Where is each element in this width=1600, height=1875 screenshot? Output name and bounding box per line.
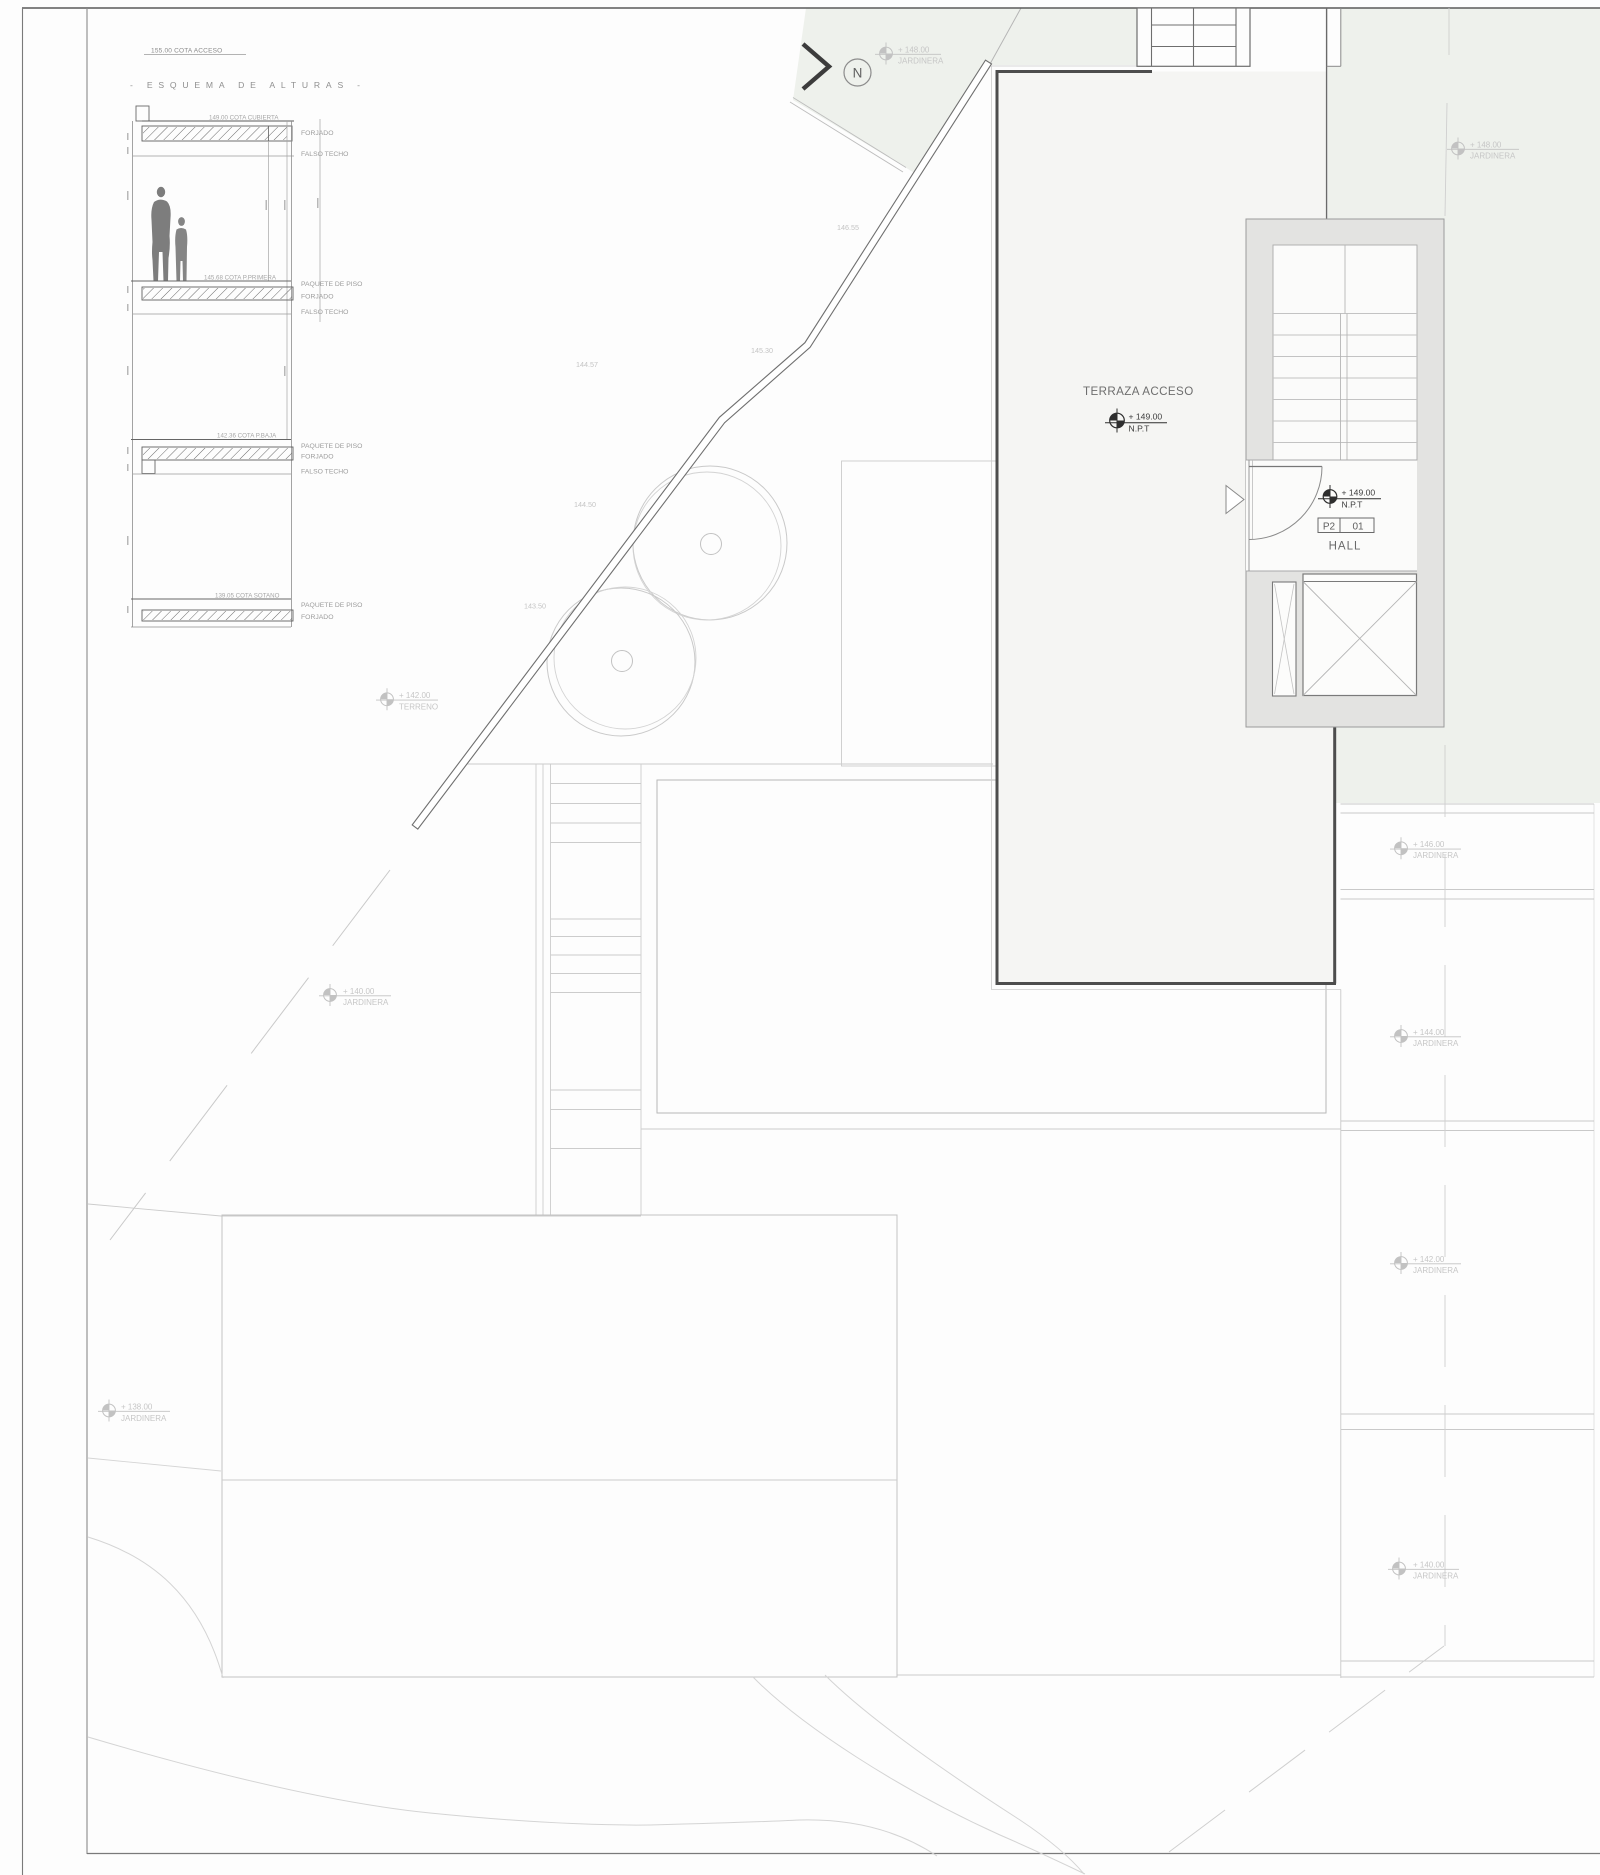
- svg-text:146.55: 146.55: [837, 223, 859, 232]
- svg-text:PAQUETE DE PISO: PAQUETE DE PISO: [301, 281, 362, 288]
- svg-text:+ 148.00: + 148.00: [1470, 140, 1502, 149]
- svg-text:TERRENO: TERRENO: [399, 703, 438, 712]
- svg-text:145.68 COTA P.PRIMERA: 145.68 COTA P.PRIMERA: [204, 275, 277, 282]
- svg-text:144.50: 144.50: [574, 500, 596, 509]
- svg-text:+ 149.00: + 149.00: [1342, 487, 1376, 497]
- svg-text:+ 144.00: + 144.00: [1413, 1028, 1445, 1037]
- svg-text:FORJADO: FORJADO: [301, 294, 333, 301]
- svg-text:PAQUETE DE PISO: PAQUETE DE PISO: [301, 602, 362, 609]
- svg-text:FORJADO: FORJADO: [301, 454, 333, 461]
- svg-text:P2: P2: [1323, 522, 1336, 533]
- svg-text:+ 142.00: + 142.00: [399, 691, 431, 700]
- svg-text:N.P.T: N.P.T: [1129, 423, 1151, 433]
- svg-text:FALSO TECHO: FALSO TECHO: [301, 469, 348, 476]
- svg-text:+ 138.00: + 138.00: [121, 1402, 153, 1411]
- svg-text:JARDINERA: JARDINERA: [1413, 1571, 1459, 1580]
- svg-text:JARDINERA: JARDINERA: [1470, 151, 1516, 160]
- svg-text:142.36 COTA P.BAJA: 142.36 COTA P.BAJA: [217, 433, 277, 440]
- svg-text:144.57: 144.57: [576, 360, 598, 369]
- svg-text:139.05 COTA SOTANO: 139.05 COTA SOTANO: [215, 593, 280, 600]
- svg-text:JARDINERA: JARDINERA: [343, 998, 389, 1007]
- svg-text:+ 148.00: + 148.00: [898, 45, 930, 54]
- svg-text:FALSO TECHO: FALSO TECHO: [301, 151, 348, 158]
- svg-text:+ 149.00: + 149.00: [1129, 411, 1163, 421]
- svg-text:N.P.T: N.P.T: [1342, 499, 1364, 509]
- svg-text:155.00 COTA ACCESO: 155.00 COTA ACCESO: [151, 48, 222, 55]
- svg-text:FALSO TECHO: FALSO TECHO: [301, 309, 348, 316]
- svg-text:HALL: HALL: [1329, 541, 1362, 553]
- svg-text:FORJADO: FORJADO: [301, 130, 333, 137]
- svg-text:145.30: 145.30: [751, 346, 773, 355]
- svg-text:FORJADO: FORJADO: [301, 614, 333, 621]
- svg-text:N: N: [853, 66, 863, 81]
- svg-text:+ 146.00: + 146.00: [1413, 840, 1445, 849]
- svg-text:149.00 COTA CUBIERTA: 149.00 COTA CUBIERTA: [209, 115, 279, 122]
- svg-text:PAQUETE DE PISO: PAQUETE DE PISO: [301, 443, 362, 450]
- svg-text:JARDINERA: JARDINERA: [1413, 1039, 1459, 1048]
- svg-text:TERRAZA ACCESO: TERRAZA ACCESO: [1083, 385, 1194, 398]
- svg-text:JARDINERA: JARDINERA: [898, 56, 944, 65]
- svg-text:JARDINERA: JARDINERA: [1413, 1266, 1459, 1275]
- svg-text:JARDINERA: JARDINERA: [1413, 851, 1459, 860]
- svg-text:JARDINERA: JARDINERA: [121, 1414, 167, 1423]
- svg-text:+ 140.00: + 140.00: [343, 987, 375, 996]
- svg-text:+ 142.00: + 142.00: [1413, 1255, 1445, 1264]
- svg-text:143.50: 143.50: [524, 602, 546, 611]
- svg-text:01: 01: [1352, 522, 1364, 533]
- svg-text:- ESQUEMA DE ALTURAS -: - ESQUEMA DE ALTURAS -: [130, 80, 366, 90]
- svg-text:+ 140.00: + 140.00: [1413, 1560, 1445, 1569]
